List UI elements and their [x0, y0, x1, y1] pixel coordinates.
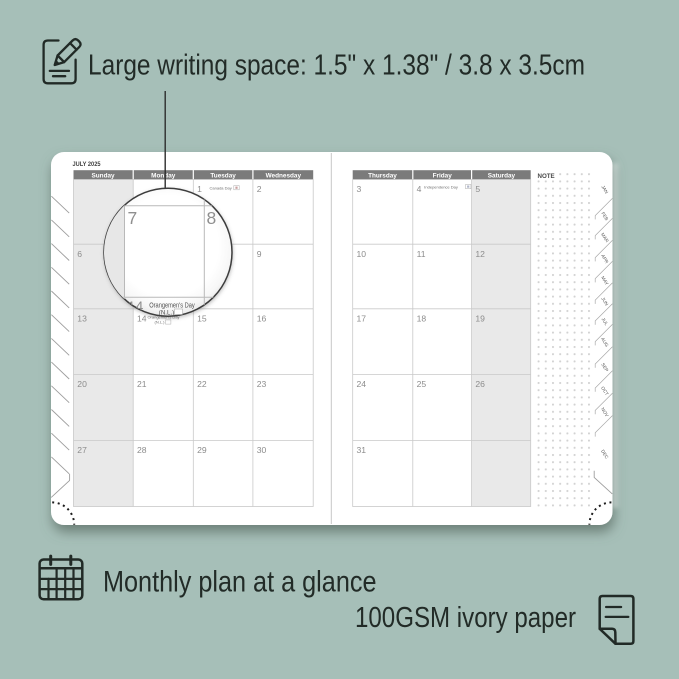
svg-text:12: 12	[475, 249, 485, 259]
svg-text:3: 3	[357, 184, 362, 194]
svg-text:Saturday: Saturday	[488, 172, 516, 179]
svg-text:20: 20	[77, 379, 87, 389]
svg-text:31: 31	[357, 445, 367, 455]
svg-text:NOTE: NOTE	[538, 173, 555, 180]
svg-text:11: 11	[417, 249, 426, 259]
svg-text:JULY 2025: JULY 2025	[73, 161, 102, 168]
svg-text:Thursday: Thursday	[368, 172, 397, 179]
svg-text:9: 9	[257, 249, 262, 259]
svg-text:Orangemen's Day: Orangemen's Day	[149, 300, 195, 309]
svg-text:8: 8	[207, 208, 217, 228]
svg-text:100GSM ivory paper: 100GSM ivory paper	[355, 602, 576, 634]
svg-text:Wednesday: Wednesday	[266, 172, 302, 179]
svg-text:4: 4	[417, 184, 422, 194]
svg-text:Large writing space: 1.5" x 1.: Large writing space: 1.5" x 1.38" / 3.8 …	[88, 50, 585, 82]
svg-text:Friday: Friday	[433, 172, 453, 179]
svg-text:16: 16	[257, 313, 267, 323]
svg-text:(N.L.): (N.L.)	[159, 310, 174, 317]
svg-text:27: 27	[77, 445, 87, 455]
svg-text:21: 21	[137, 379, 147, 389]
svg-text:24: 24	[357, 379, 367, 389]
svg-text:7: 7	[128, 208, 138, 228]
svg-text:25: 25	[417, 379, 427, 389]
svg-text:23: 23	[257, 379, 267, 389]
svg-text:29: 29	[197, 445, 207, 455]
svg-text:(N.L.): (N.L.)	[155, 320, 166, 325]
svg-text:Tuesday: Tuesday	[210, 172, 236, 179]
svg-text:17: 17	[357, 313, 367, 323]
svg-text:2: 2	[257, 184, 262, 194]
svg-text:19: 19	[475, 313, 485, 323]
svg-text:Monday: Monday	[151, 172, 176, 179]
svg-text:1: 1	[197, 184, 202, 194]
svg-text:Monthly plan at a glance: Monthly plan at a glance	[103, 566, 377, 599]
svg-text:26: 26	[475, 379, 485, 389]
svg-text:Sunday: Sunday	[92, 172, 116, 179]
svg-text:18: 18	[417, 313, 427, 323]
svg-text:6: 6	[77, 249, 82, 259]
svg-text:Canada Day: Canada Day	[210, 186, 232, 191]
svg-text:13: 13	[77, 313, 87, 323]
svg-text:14: 14	[137, 313, 147, 323]
svg-text:10: 10	[357, 249, 367, 259]
svg-text:15: 15	[197, 313, 207, 323]
svg-text:28: 28	[137, 445, 147, 455]
svg-text:Independence Day: Independence Day	[424, 185, 458, 190]
svg-text:22: 22	[197, 379, 207, 389]
svg-text:5: 5	[475, 184, 480, 194]
svg-text:30: 30	[257, 445, 267, 455]
